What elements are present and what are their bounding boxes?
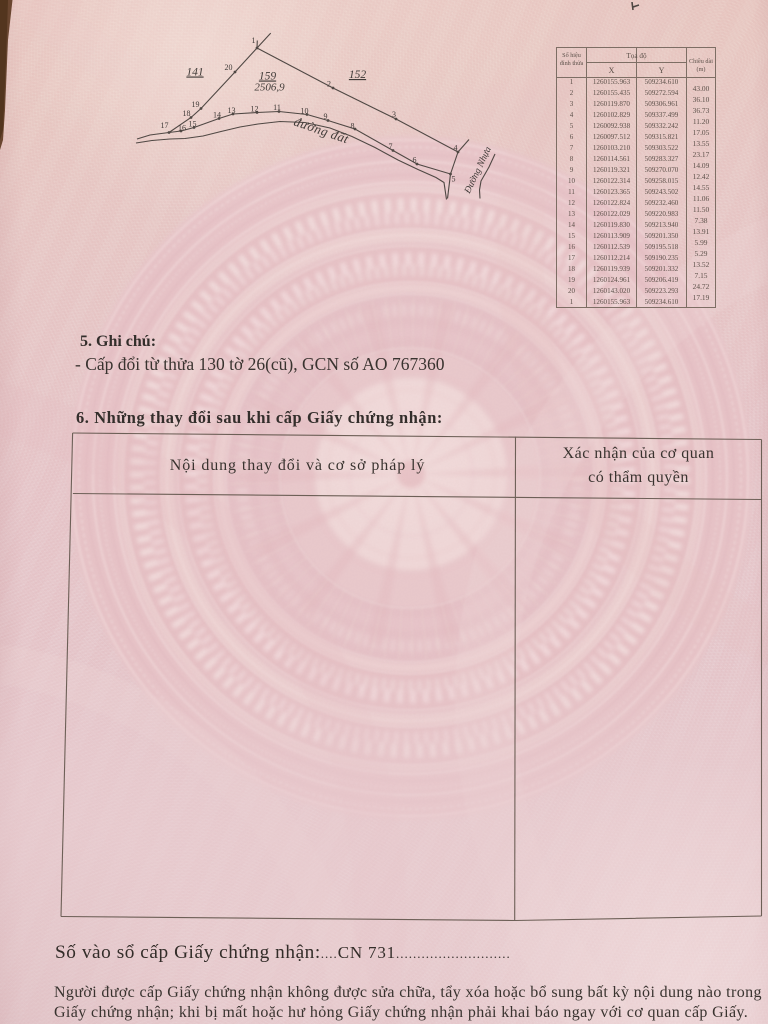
svg-text:2: 2 — [327, 80, 331, 89]
svg-text:141: 141 — [186, 67, 203, 79]
svg-text:12: 12 — [251, 105, 259, 114]
svg-text:6: 6 — [413, 156, 417, 165]
svg-text:9: 9 — [324, 112, 328, 121]
svg-text:15: 15 — [189, 120, 197, 129]
svg-text:3: 3 — [392, 110, 396, 119]
svg-text:Đường Nhựa: Đường Nhựa — [462, 145, 494, 196]
svg-text:1: 1 — [252, 36, 256, 45]
svg-text:10: 10 — [301, 107, 309, 116]
svg-text:5: 5 — [452, 175, 456, 184]
svg-text:19: 19 — [192, 100, 200, 109]
svg-text:4: 4 — [454, 144, 458, 153]
svg-text:152: 152 — [349, 69, 367, 81]
svg-text:159: 159 — [259, 71, 277, 83]
svg-text:14: 14 — [213, 111, 221, 120]
svg-text:18: 18 — [183, 109, 191, 118]
svg-text:17: 17 — [161, 121, 169, 130]
svg-text:16: 16 — [178, 124, 186, 133]
svg-text:13: 13 — [228, 106, 236, 115]
svg-text:20: 20 — [225, 63, 233, 72]
svg-text:7: 7 — [389, 142, 393, 151]
svg-text:11: 11 — [273, 103, 281, 112]
svg-text:8: 8 — [351, 122, 355, 131]
svg-text:đường đất: đường đất — [292, 114, 351, 147]
svg-text:2506,9: 2506,9 — [254, 82, 285, 94]
